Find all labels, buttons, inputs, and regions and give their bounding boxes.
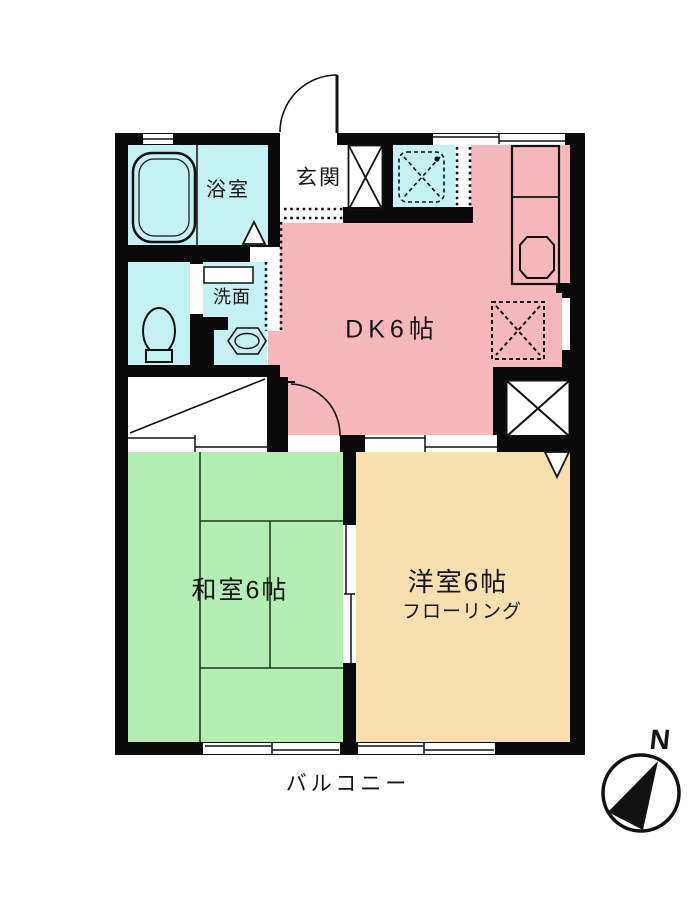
pipe-space-fill xyxy=(506,380,570,437)
bathroom-window xyxy=(143,134,173,144)
japanese-room-label: 和室6帖 xyxy=(192,579,289,604)
kitchen-window xyxy=(433,134,565,145)
dining-kitchen-label: DK6帖 xyxy=(345,318,439,343)
western-room-fill xyxy=(356,452,570,742)
toilet-room-fill xyxy=(128,262,190,365)
washer-side-strip xyxy=(455,145,471,207)
entrance-label: 玄関 xyxy=(296,168,342,189)
wall-outer-left xyxy=(115,145,128,742)
wall-deadspace-right xyxy=(267,377,288,452)
wall-wa-yo-lower xyxy=(343,663,356,742)
japanese-room-window xyxy=(203,743,340,754)
entrance-door-opening xyxy=(280,133,337,145)
floor-plan: 浴室 洗面 玄関 DK6帖 和室6帖 洋室6帖 フローリング バルコニー N xyxy=(0,0,700,907)
western-room-window xyxy=(358,743,495,754)
wall-entrance-right xyxy=(383,145,393,210)
shoe-cabinet-fill xyxy=(348,145,383,210)
wall-bathroom-right xyxy=(268,145,280,247)
wall-washroom-l-h xyxy=(203,317,228,330)
wall-below-washer xyxy=(343,207,473,223)
washer-space-fill xyxy=(393,145,455,207)
right-wall-slit-window xyxy=(562,298,570,350)
wa-yo-sliding-door xyxy=(343,525,356,663)
entrance-door-arc xyxy=(280,75,337,133)
washroom-door-opening xyxy=(250,247,280,262)
wall-outer-bottom xyxy=(115,742,585,755)
balcony-label: バルコニー xyxy=(286,774,411,795)
dead-space-fill xyxy=(128,377,267,435)
flooring-note: フローリング xyxy=(402,603,522,622)
wall-below-washroom xyxy=(128,365,280,377)
wall-washroom-l-v xyxy=(203,330,214,365)
western-room-label: 洋室6帖 xyxy=(408,569,508,595)
wall-pipe-space-bottom xyxy=(506,435,570,452)
western-room-sliding-door xyxy=(365,435,497,452)
bathroom-label: 浴室 xyxy=(206,180,250,200)
wall-wa-yo-upper xyxy=(343,450,356,525)
entrance-step-strip xyxy=(280,207,343,223)
dk-fill-top xyxy=(455,145,570,207)
toilet-door-opening xyxy=(190,264,203,314)
dk-door-opening xyxy=(288,435,340,452)
north-label: N xyxy=(648,726,671,754)
wall-below-bathroom xyxy=(128,245,268,262)
compass-icon xyxy=(603,755,679,831)
wall-outer-right xyxy=(570,145,585,742)
washroom-label: 洗面 xyxy=(213,288,251,306)
japanese-room-sliding-door xyxy=(128,435,267,452)
wall-western-top-stub xyxy=(497,435,506,452)
